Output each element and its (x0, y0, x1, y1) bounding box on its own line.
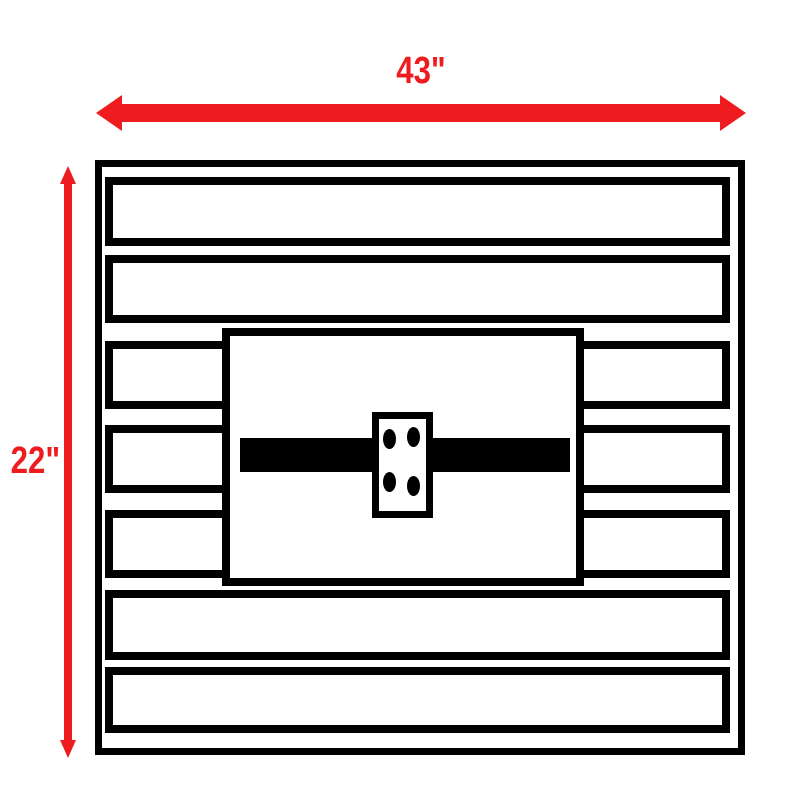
height-dimension-label: 22" (11, 442, 54, 480)
bolt-hole-icon (407, 476, 420, 496)
bolt-hole-icon (407, 427, 420, 447)
width-arrow-shaft (116, 104, 726, 122)
width-dimension-arrow (96, 95, 746, 131)
arrowhead-down-icon (60, 740, 76, 758)
width-dimension-label: 43" (155, 52, 688, 90)
pallet-slat-1 (105, 177, 730, 246)
bolt-hole-icon (383, 429, 396, 449)
height-arrow-shaft (64, 180, 72, 744)
arrowhead-right-icon (720, 95, 746, 131)
pallet-slat-7 (105, 667, 730, 733)
center-backer-plate (222, 328, 584, 586)
pallet-slat-6 (105, 590, 730, 660)
bolt-plate (372, 412, 433, 518)
height-dimension-arrow (60, 166, 76, 758)
pallet-outer-frame (95, 160, 745, 755)
pallet-slat-2 (105, 255, 730, 323)
bolt-hole-icon (383, 472, 396, 492)
pallet-dimension-diagram: 43" 22" (0, 0, 800, 800)
